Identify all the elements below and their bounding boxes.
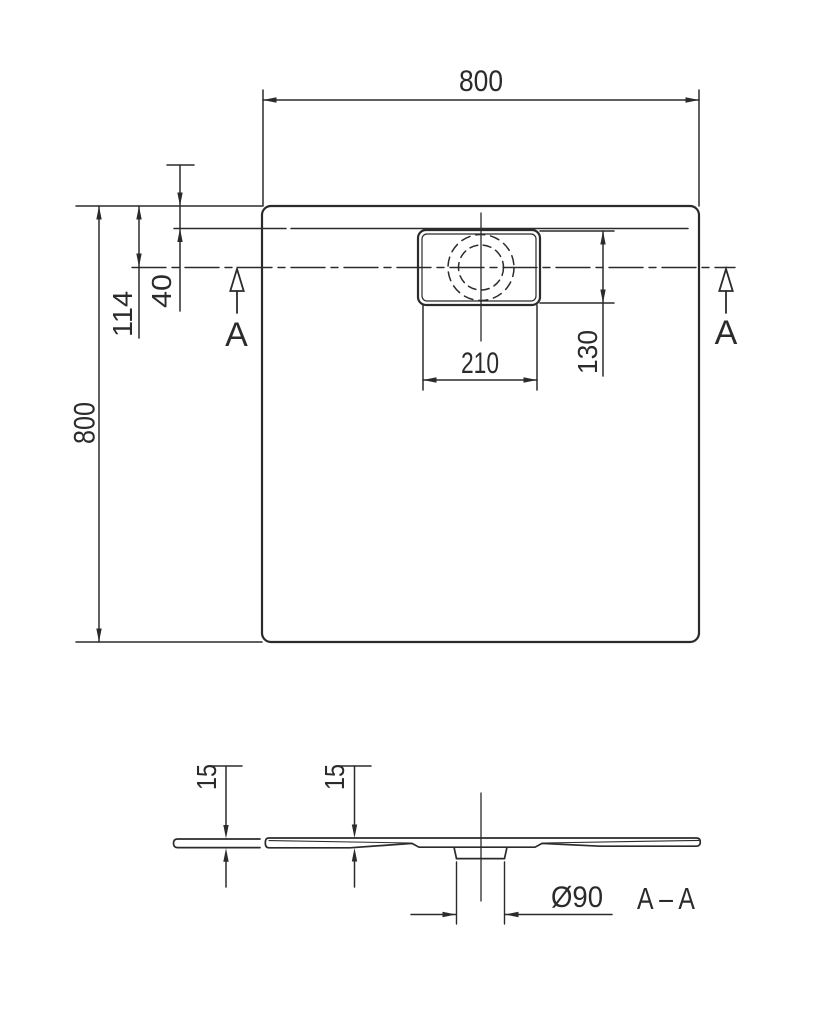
dim-edge-to-drain-center: 114 <box>107 206 142 338</box>
technical-drawing-page: 800 800 114 40 <box>0 0 838 1024</box>
arrowhead-bottom <box>96 629 101 643</box>
section-view: 15 15 Ø90 A – A <box>174 764 701 924</box>
dim-label-40: 40 <box>146 274 177 308</box>
arrowhead-top <box>136 206 141 220</box>
arrowhead-down <box>352 825 357 839</box>
dim-label-diameter: Ø90 <box>551 881 603 914</box>
dim-label-width: 800 <box>459 65 503 98</box>
section-marker-right-label: A <box>715 314 738 352</box>
dim-overall-width: 800 <box>263 65 699 206</box>
arrowhead-up <box>177 229 182 243</box>
dim-drain-center-offset: 130 <box>540 231 614 376</box>
arrowhead-bottom <box>600 290 605 304</box>
dim-label-210: 210 <box>461 347 499 380</box>
section-surface-slope-lines <box>269 840 699 843</box>
dim-label-15-right: 15 <box>319 764 350 790</box>
arrowhead-right <box>686 97 700 102</box>
dim-label-130: 130 <box>572 330 603 374</box>
dim-drain-diameter: Ø90 <box>411 881 612 917</box>
section-marker-left-label: A <box>225 316 248 354</box>
dim-label-114: 114 <box>107 291 138 337</box>
arrowhead-up <box>352 848 357 862</box>
dim-label-15-left: 15 <box>191 764 222 790</box>
drain-cover <box>418 213 540 341</box>
arrowhead-right-pointing <box>443 912 457 917</box>
section-marker-left: A <box>225 269 248 354</box>
arrowhead-left-pointing <box>505 912 519 917</box>
arrowhead-left <box>423 377 437 382</box>
arrowhead-top <box>96 206 101 220</box>
arrowhead-down <box>177 193 182 207</box>
arrowhead-up <box>223 848 228 862</box>
arrowhead-left <box>263 97 277 102</box>
shower-tray-dimension-drawing: 800 800 114 40 <box>0 0 838 1024</box>
arrowhead-bottom <box>136 254 141 268</box>
section-title: A – A <box>637 881 695 916</box>
section-arrow-right <box>719 269 732 291</box>
extension-lines <box>263 90 699 206</box>
section-left-rim-strip <box>174 839 261 848</box>
arrowhead-top <box>600 231 605 245</box>
arrowhead-right <box>524 377 538 382</box>
extension-lines <box>76 206 262 642</box>
dim-drain-cover-width: 210 <box>423 305 537 390</box>
section-arrow-left <box>230 269 243 291</box>
plan-view: 800 800 114 40 <box>69 65 738 642</box>
dim-edge-thickness: 15 <box>191 764 242 887</box>
dim-label-depth: 800 <box>69 402 102 444</box>
section-tray-profile <box>265 838 700 848</box>
dim-overall-depth: 800 <box>69 206 263 642</box>
arrowhead-down <box>223 825 228 839</box>
dim-rim-to-inner-surface: 40 <box>146 165 194 311</box>
section-marker-right: A <box>715 269 738 352</box>
dim-inner-thickness: 15 <box>319 764 371 887</box>
